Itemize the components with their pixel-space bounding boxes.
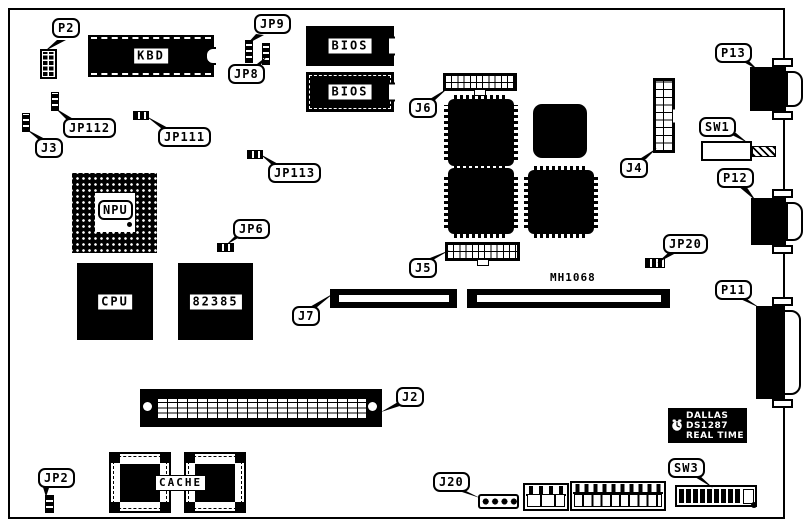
callout-jp112: JP112: [63, 118, 116, 138]
callout-j3: J3: [35, 138, 63, 158]
leader-jp9: [247, 34, 264, 44]
cache-label: CACHE: [155, 475, 206, 491]
callout-jp20: JP20: [663, 234, 708, 254]
leader-lines: [0, 0, 806, 527]
leader-p2: [45, 40, 66, 51]
callout-j5: J5: [409, 258, 437, 278]
leader-p12: [738, 186, 756, 201]
callout-j4: J4: [620, 158, 648, 178]
leader-jp20: [657, 253, 676, 263]
callout-p13: P13: [715, 43, 752, 63]
callout-p2: P2: [52, 18, 80, 38]
callout-jp2: JP2: [38, 468, 75, 488]
callout-j6: J6: [409, 98, 437, 118]
board-diagram: KBD BIOS BIOS NPU CPU 82385: [0, 0, 806, 527]
callout-jp8: JP8: [228, 64, 265, 84]
callout-jp6: JP6: [233, 219, 270, 239]
callout-p11: P11: [715, 280, 752, 300]
callout-jp9: JP9: [254, 14, 291, 34]
callout-p12: P12: [717, 168, 754, 188]
callout-jp111: JP111: [158, 127, 211, 147]
callout-jp113: JP113: [268, 163, 321, 183]
callout-sw3: SW3: [668, 458, 705, 478]
callout-sw1: SW1: [699, 117, 736, 137]
callout-j2: J2: [396, 387, 424, 407]
callout-j20: J20: [433, 472, 470, 492]
callout-j7: J7: [292, 306, 320, 326]
